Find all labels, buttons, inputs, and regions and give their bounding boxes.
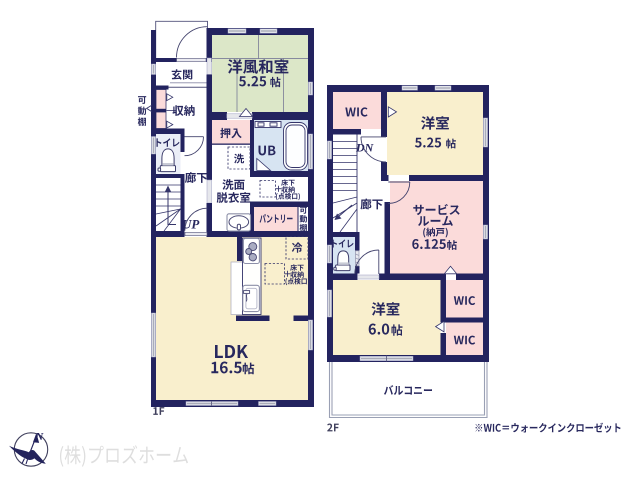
svg-text:N: N — [35, 432, 44, 443]
svg-text:UP: UP — [182, 217, 200, 232]
svg-text:DN: DN — [355, 141, 375, 155]
